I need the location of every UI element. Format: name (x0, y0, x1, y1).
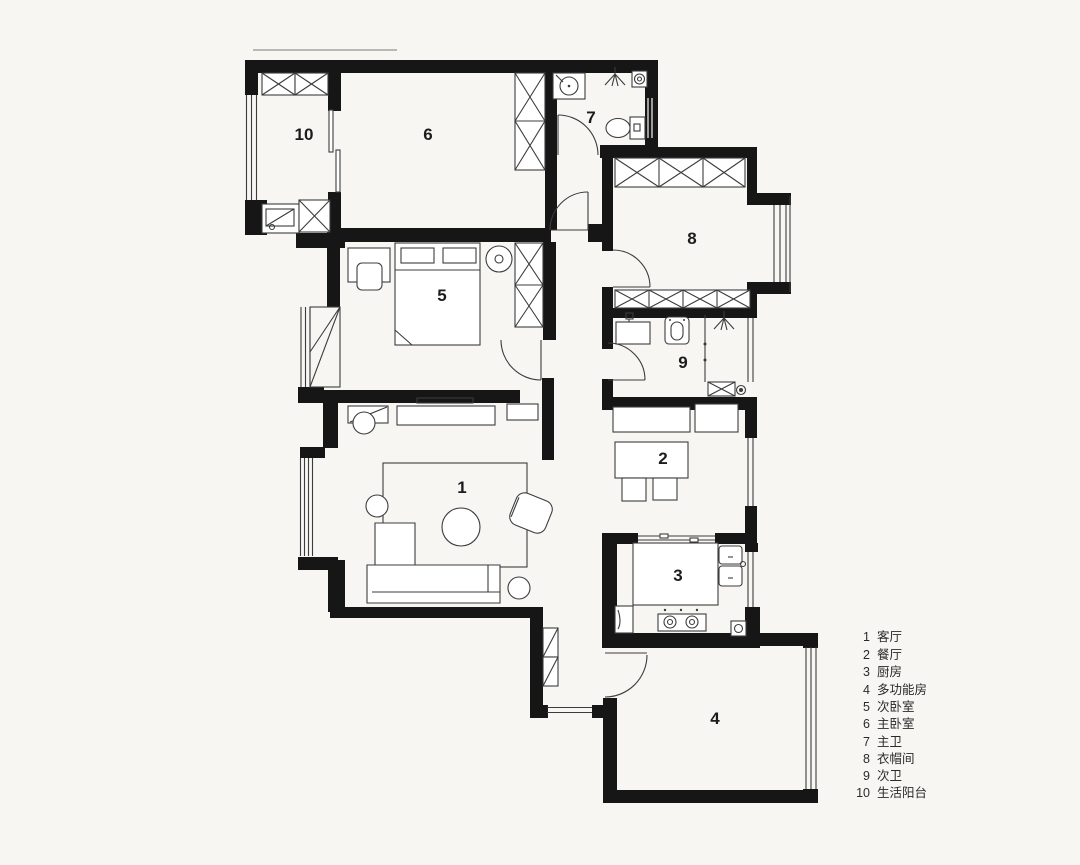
legend-num: 4 (863, 683, 870, 697)
dining-east-window-icon (748, 438, 753, 506)
fridge-icon (615, 606, 633, 633)
legend-label: 生活阳台 (877, 785, 927, 800)
legend-num: 7 (863, 735, 870, 749)
legend-num: 6 (863, 717, 870, 731)
wardrobe-icon (515, 73, 545, 170)
side-table-icon (507, 404, 538, 420)
wardrobe-icon (515, 243, 543, 327)
wardrobe-icon (615, 158, 745, 187)
entry-fixtures (543, 628, 558, 686)
master-bedroom-fixtures (515, 73, 545, 170)
legend: 1 客厅 2 餐厅 3 厨房 4 多功能房 5 次卧室 6 主卧室 7 主卫 8… (856, 629, 927, 800)
kitchen-east-window-icon (748, 552, 753, 607)
balcony-fixtures (262, 73, 330, 233)
entry-door-icon (605, 653, 647, 697)
stove-icon (658, 609, 706, 631)
desk-icon (348, 248, 390, 290)
floor-drain-icon (737, 386, 746, 395)
legend-num: 3 (863, 665, 870, 679)
closet-bay-window-icon (774, 196, 790, 292)
cabinet-x-icon (262, 73, 328, 95)
living-fixtures (348, 398, 555, 603)
legend-label: 多功能房 (877, 682, 927, 697)
kitchen-fixtures (615, 534, 746, 636)
armchair-icon (507, 490, 555, 536)
balcony-west-window-icon (247, 95, 257, 200)
room-label-bath9: 9 (678, 353, 687, 372)
legend-num: 1 (863, 630, 870, 644)
wardrobe-icon (615, 290, 750, 308)
sideboard-icon (613, 407, 690, 432)
legend-num: 8 (863, 752, 870, 766)
chair-icon (622, 478, 646, 501)
entry-south-window-icon (547, 708, 592, 713)
room-label-bedroom2: 5 (437, 286, 446, 305)
balcony-sliding-door-icon (329, 110, 340, 192)
chair-icon (653, 478, 677, 500)
legend-label: 次卫 (877, 769, 902, 783)
legend-label: 主卫 (877, 735, 902, 749)
dining-table-icon (615, 442, 688, 478)
room-label-living: 1 (457, 478, 466, 497)
water-heater-icon (731, 621, 746, 636)
closet-fixtures (615, 158, 750, 308)
coffee-table-icon (442, 508, 480, 546)
kitchen-sliding-door-icon (638, 534, 715, 542)
laundry-sink-icon (262, 204, 299, 233)
master-bath-fixtures (553, 67, 647, 139)
room4-east-window-icon (806, 647, 816, 789)
side-round-table-icon (366, 495, 388, 517)
room-label-master: 6 (423, 125, 432, 144)
legend-label: 客厅 (877, 629, 902, 644)
room-label-dining: 2 (658, 449, 667, 468)
bath9-east-window-icon (748, 318, 753, 382)
cabinet-icon (695, 404, 738, 432)
legend-label: 衣帽间 (877, 751, 915, 766)
shoe-cabinet-icon (543, 628, 558, 686)
bedroom5-door-icon (501, 340, 541, 380)
legend-num: 10 (856, 786, 870, 800)
floor-plan-page: 1 2 3 4 5 6 7 8 9 10 1 客厅 2 餐厅 3 厨房 4 多功… (0, 0, 1080, 865)
tv-console-icon (397, 406, 495, 425)
room-label-multiroom: 4 (710, 709, 720, 728)
closet-door-icon (613, 250, 650, 287)
floor-plan-drawing: 1 2 3 4 5 6 7 8 9 10 1 客厅 2 餐厅 3 厨房 4 多功… (0, 0, 1080, 865)
room-label-closet: 8 (687, 229, 696, 248)
side-round-table-icon (508, 577, 530, 599)
legend-num: 2 (863, 648, 870, 662)
washing-machine-icon (665, 317, 689, 344)
legend-label: 主卧室 (877, 716, 915, 731)
exhaust-fan-icon (632, 71, 647, 87)
dining-fixtures (613, 404, 738, 501)
dressing-table-icon (348, 406, 388, 434)
kitchen-sink-icon (719, 546, 746, 586)
bedside-table-icon (486, 246, 512, 272)
sofa-icon (367, 523, 500, 603)
cabinet-x-icon (708, 382, 735, 396)
room-label-bath7: 7 (586, 108, 595, 127)
shower-partition-icon (704, 315, 707, 382)
room-label-kitchen: 3 (673, 566, 682, 585)
legend-label: 次卧室 (877, 699, 915, 714)
legend-label: 餐厅 (877, 647, 902, 662)
legend-num: 5 (863, 700, 870, 714)
legend-label: 厨房 (877, 664, 902, 679)
legend-num: 9 (863, 769, 870, 783)
living-bay-window-icon (301, 458, 313, 556)
sink-icon (553, 73, 585, 99)
toilet-icon (606, 117, 645, 139)
cabinet-x-icon (299, 200, 330, 232)
room-label-balcony: 10 (295, 125, 314, 144)
bath9-door-icon (608, 343, 645, 380)
